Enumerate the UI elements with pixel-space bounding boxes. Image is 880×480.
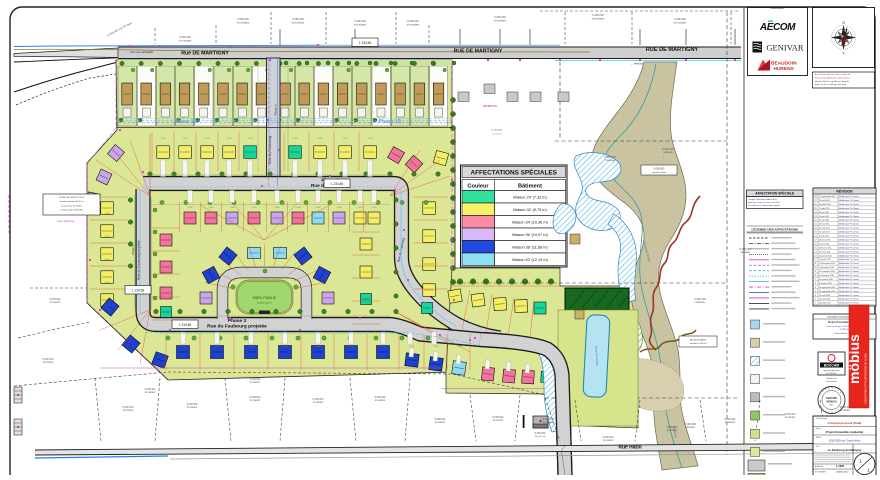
svg-text:5 096: 5 096 [367,138,373,140]
svg-text:CONCEPTION ET PLANIFICATION DE: CONCEPTION ET PLANIFICATION DE PLANS [865,353,868,404]
svg-text:se conformer à l'affectation p: se conformer à l'affectation projetée. [748,204,781,207]
svg-text:lot existant: lot existant [179,38,192,42]
svg-text:arpenteurs-géomètres: arpenteurs-géomètres [823,369,840,372]
svg-text:5 096: 5 096 [247,138,253,140]
svg-text:1 avril 2011: 1 avril 2011 [819,235,829,238]
svg-text:Modification Ph.1 émise: Modification Ph.1 émise [839,242,859,245]
svg-text:27 août 2010: 27 août 2010 [819,294,830,297]
svg-text:LÉGENDE DES AFFECTATIONS: LÉGENDE DES AFFECTATIONS [752,227,798,232]
svg-text:Modification Ph.3 émise: Modification Ph.3 émise [839,282,859,285]
svg-text:GENIVAR: GENIVAR [766,43,803,53]
svg-text:ruisseau: ruisseau [695,300,705,304]
svg-text:Rue DE MARTIGNY: Rue DE MARTIGNY [181,51,229,57]
svg-text:Modification Ph.1 émise: Modification Ph.1 émise [839,195,859,198]
svg-text:ÉCHELLE: ÉCHELLE [815,465,824,468]
svg-text:5 096: 5 096 [229,207,235,209]
svg-text:Modification Ph.2 émise: Modification Ph.2 émise [839,215,859,218]
svg-text:limite approuvée: limite approuvée [57,220,75,223]
svg-text:5 096: 5 096 [433,346,439,348]
svg-text:21 janvier 2011: 21 janvier 2011 [819,254,832,257]
svg-text:5 096: 5 096 [104,213,110,215]
svg-text:8 octobre 2010: 8 octobre 2010 [819,282,832,285]
svg-text:5 096: 5 096 [295,207,301,209]
svg-text:5 096: 5 096 [380,346,386,348]
svg-text:superficie 2 000 m²: superficie 2 000 m² [689,342,706,345]
svg-text:5 096: 5 096 [348,346,354,348]
svg-text:Bâtiment: Bâtiment [518,184,542,190]
svg-text:grille des usages et normes du: grille des usages et normes du Plan [748,201,780,204]
svg-text:30 juillet 2010: 30 juillet 2010 [819,302,831,305]
svg-text:29 avril 2011: 29 avril 2011 [819,227,830,230]
svg-text:PARC PUBLIC: PARC PUBLIC [253,296,277,300]
svg-text:5 096: 5 096 [104,259,110,261]
svg-text:15 avril 2011: 15 avril 2011 [819,231,830,234]
svg-text:1 234,56: 1 234,56 [359,41,372,45]
svg-text:N° DOSSIER: N° DOSSIER [815,472,826,474]
svg-text:lot vacant: lot vacant [250,381,261,384]
svg-text:Titre du projet: Titre du projet [816,417,828,420]
svg-text:5 096: 5 096 [214,346,220,348]
svg-text:Couleur: Couleur [467,184,489,190]
svg-text:GROUPE: GROUPE [826,396,838,400]
svg-text:MOBIUS: MOBIUS [826,400,837,404]
svg-text:Maison 34' (10,36 m): Maison 34' (10,36 m) [512,220,548,224]
svg-text:5 096: 5 096 [456,346,462,348]
svg-text:5 096: 5 096 [160,138,166,140]
svg-text:Partenaires: Partenaires [770,6,784,10]
svg-text:20 juillet 2011: 20 juillet 2011 [819,203,831,206]
svg-text:RUE DE MARTIGNY: RUE DE MARTIGNY [454,49,503,55]
svg-text:Lieu: Lieu [816,446,819,448]
svg-text:Modification Ph.3 émise: Modification Ph.3 émise [839,298,859,301]
svg-text:lot vacant: lot vacant [667,429,678,432]
svg-text:1 234,56: 1 234,56 [132,288,145,292]
svg-text:Modification Ph.3 émise: Modification Ph.3 émise [839,235,859,238]
svg-text:5 096 000: 5 096 000 [179,35,191,39]
svg-text:5 096: 5 096 [315,207,321,209]
svg-text:5 096: 5 096 [226,138,232,140]
svg-text:13 août 2010: 13 août 2010 [819,298,830,301]
svg-text:RUE DE MARTIGNY: RUE DE MARTIGNY [646,47,699,53]
svg-text:5 096 000: 5 096 000 [654,168,665,171]
svg-text:Maison 38' (11,58 m): Maison 38' (11,58 m) [512,245,548,249]
svg-text:bande riveraine de 10 m: bande riveraine de 10 m [60,200,84,203]
svg-text:24 septembre 2010: 24 septembre 2010 [819,286,835,289]
svg-text:Modification Ph.4 émise: Modification Ph.4 émise [839,254,859,257]
svg-text:Le Faubourg de Martigny: Le Faubourg de Martigny [828,448,862,452]
svg-text:Saint-Jérôme: Saint-Jérôme [826,380,837,383]
svg-text:Modification Ph.2 émise: Modification Ph.2 émise [839,231,859,234]
svg-text:lot vacant: lot vacant [785,416,796,419]
svg-text:BEAUDOIN: BEAUDOIN [771,61,797,67]
svg-text:Rue du Faubourg projetée: Rue du Faubourg projetée [207,324,267,330]
svg-text:möbius: möbius [846,334,862,384]
svg-text:034274-001: 034274-001 [836,472,848,474]
svg-text:ruisseau: ruisseau [740,250,750,254]
svg-text:5 096 000: 5 096 000 [237,17,249,21]
svg-text:5 096: 5 096 [104,236,110,238]
svg-text:Rue Hatin: Rue Hatin [618,445,641,451]
svg-text:niveaux et les dimensions. Tou: niveaux et les dimensions. Toute erreur … [815,77,851,80]
svg-text:BOCCAM: BOCCAM [824,364,839,368]
svg-text:Modification Ph.4 émise: Modification Ph.4 émise [839,270,859,273]
svg-text:7 juillet 2011: 7 juillet 2011 [819,207,829,210]
svg-text:5 096: 5 096 [208,207,214,209]
svg-text:18 mars 2011: 18 mars 2011 [819,238,830,241]
svg-text:5 096 000: 5 096 000 [292,17,304,21]
svg-text:lot vacant: lot vacant [603,439,614,442]
svg-text:lot vacant: lot vacant [313,401,324,404]
svg-text:Modification Ph.2 émise: Modification Ph.2 émise [839,262,859,265]
svg-text:4 mars 2011: 4 mars 2011 [819,242,829,245]
svg-text:Roxell Tub: Roxell Tub [535,436,546,438]
svg-text:Phase 2: Phase 2 [274,104,278,115]
svg-text:4 février 2011: 4 février 2011 [819,250,830,253]
svg-text:Modification Ph.3 émise: Modification Ph.3 émise [839,219,859,222]
svg-text:19 novembre 2010: 19 novembre 2010 [819,270,835,273]
svg-text:Modification Ph.2 émise: Modification Ph.2 émise [839,294,859,297]
svg-text:AECOM: AECOM [759,22,796,33]
svg-text:5 096: 5 096 [182,138,188,140]
svg-text:lot existant: lot existant [407,22,420,26]
svg-text:Maison 40' (12,19 m): Maison 40' (12,19 m) [512,258,548,262]
svg-text:1 234,56: 1 234,56 [179,323,192,327]
svg-text:Modification Ph.4 émise: Modification Ph.4 émise [839,223,859,226]
svg-text:4 753 561: 4 753 561 [492,129,503,132]
svg-text:17 décembre 2010: 17 décembre 2010 [819,262,835,265]
svg-text:lot vacant: lot vacant [187,406,198,409]
svg-text:lot vacant: lot vacant [492,132,502,135]
svg-text:humide (règl. 2010-99): humide (règl. 2010-99) [60,209,82,212]
svg-text:3 décembre 2010: 3 décembre 2010 [819,266,834,269]
svg-text:lot existant: lot existant [592,16,605,20]
svg-text:ruisseau: ruisseau [605,158,615,162]
svg-text:Modification Ph.1 émise: Modification Ph.1 émise [839,211,859,214]
svg-text:5 096: 5 096 [315,346,321,348]
svg-text:Lorsque l'affectation diffère: Lorsque l'affectation diffère de la [748,198,778,201]
svg-text:5 novembre 2010: 5 novembre 2010 [819,274,834,277]
svg-text:22 octobre 2010: 22 octobre 2010 [819,278,833,281]
svg-text:Modification Ph.3 émise: Modification Ph.3 émise [839,203,859,206]
svg-text:lot vacant: lot vacant [375,399,386,402]
svg-text:5 096 000: 5 096 000 [407,19,419,23]
svg-text:lot vacant: lot vacant [123,409,134,412]
svg-text:RÉTENTION: RÉTENTION [483,105,497,108]
svg-text:lot vacant: lot vacant [250,399,261,402]
svg-text:3150-3250 boul. Grand-Héron: 3150-3250 boul. Grand-Héron [829,440,862,443]
svg-text:Modification Ph.1 émise: Modification Ph.1 émise [839,274,859,277]
svg-text:3 200 100: 3 200 100 [840,329,850,331]
svg-text:superficie totale: superficie totale [652,171,667,174]
svg-text:5 096: 5 096 [336,207,342,209]
svg-text:ruisseau: ruisseau [685,425,695,429]
svg-text:Concept proposé (final): Concept proposé (final) [828,421,862,425]
svg-text:Phase 1B: Phase 1B [379,119,402,125]
svg-text:Modification Ph.3 émise: Modification Ph.3 émise [839,266,859,269]
svg-text:lot vacant: lot vacant [145,391,156,394]
svg-text:INC.: INC. [830,405,834,407]
svg-text:5 096: 5 096 [248,346,254,348]
svg-text:24 juin 2011: 24 juin 2011 [819,212,829,214]
svg-text:S: S [842,51,844,55]
svg-text:HURENS: HURENS [774,66,795,72]
svg-text:5 096: 5 096 [204,138,210,140]
svg-text:7 janvier 2011: 7 janvier 2011 [819,258,831,261]
svg-text:Modification Ph.4 émise: Modification Ph.4 émise [839,286,859,289]
svg-text:5 096 000: 5 096 000 [535,432,546,435]
svg-text:Projet: Projet [816,427,821,430]
svg-text:10 septembre 2010: 10 septembre 2010 [819,290,835,293]
svg-text:Modification Ph.4 émise: Modification Ph.4 émise [839,238,859,241]
svg-text:ruisseau: ruisseau [663,150,673,154]
svg-text:lot vacant: lot vacant [43,361,54,364]
svg-text:superficie 2 500 m²: superficie 2 500 m² [257,302,273,305]
svg-text:26 août 2011: 26 août 2011 [819,199,830,202]
svg-text:10 juin 2011: 10 juin 2011 [819,216,829,218]
svg-text:Phase 3: Phase 3 [228,318,246,324]
svg-text:lot vacant: lot vacant [493,419,504,422]
svg-text:Phase 1A: Phase 1A [175,119,198,125]
svg-text:N/Réf.: N/Réf. [816,437,822,439]
svg-text:5 096: 5 096 [342,138,348,140]
svg-text:Maison 24' (7,32 m): Maison 24' (7,32 m) [513,195,547,199]
svg-text:27 mai 2011: 27 mai 2011 [819,220,829,222]
svg-text:AFFECTATION SPÉCIALE: AFFECTATION SPÉCIALE [755,191,794,196]
svg-text:lot vacant: lot vacant [725,421,736,424]
svg-text:Modification Ph.4 émise: Modification Ph.4 émise [839,302,859,305]
svg-text:← Vers rue Lachapelle: ← Vers rue Lachapelle [127,50,154,54]
svg-text:lot existant: lot existant [494,18,507,22]
svg-text:12 septembre 2011: 12 septembre 2011 [819,195,835,198]
svg-text:5 096: 5 096 [187,207,193,209]
svg-text:1 234,56: 1 234,56 [331,182,344,186]
svg-text:13 mai 2011: 13 mai 2011 [819,224,829,226]
svg-text:5 096: 5 096 [409,346,415,348]
svg-text:MILIEU HUMIDE: MILIEU HUMIDE [690,340,707,342]
svg-text:lot vacant: lot vacant [543,421,554,424]
svg-text:ZONE DE PROTECTION: ZONE DE PROTECTION [59,197,84,199]
svg-text:Maison 36' (10,97 m): Maison 36' (10,97 m) [512,233,548,237]
svg-text:lot existant: lot existant [354,22,367,26]
svg-text:5 096 000: 5 096 000 [354,19,366,23]
svg-text:AFFECTATIONS SPÉCIALES: AFFECTATIONS SPÉCIALES [470,168,557,177]
svg-text:5 096: 5 096 [251,207,257,209]
svg-text:5 096: 5 096 [357,207,363,209]
svg-text:5 096: 5 096 [282,346,288,348]
svg-text:Modification Ph.2 émise: Modification Ph.2 émise [839,278,859,281]
svg-text:Labelle & fils: Labelle & fils [826,378,836,380]
svg-text:Modification Ph.1 émise: Modification Ph.1 émise [839,227,859,230]
svg-text:5 096: 5 096 [274,207,280,209]
svg-text:5 096 000: 5 096 000 [592,13,604,17]
svg-text:5 096: 5 096 [104,305,110,307]
svg-text:5 096 000: 5 096 000 [494,15,506,19]
svg-text:Modification Ph.4 émise: Modification Ph.4 émise [839,207,859,210]
svg-text:5 096 000: 5 096 000 [674,17,686,21]
svg-text:Modification Ph.3 émise: Modification Ph.3 émise [839,250,859,253]
svg-text:5 096: 5 096 [317,138,323,140]
svg-text:5 096: 5 096 [292,138,298,140]
svg-text:18 février 2011: 18 février 2011 [819,246,831,249]
svg-text:omission doit être signalée au: omission doit être signalée au chargé de [815,80,849,83]
svg-text:lot vacant: lot vacant [50,301,61,304]
svg-text:lot vacant: lot vacant [435,421,446,424]
svg-text:lot existant: lot existant [674,20,687,24]
svg-text:5 096: 5 096 [371,207,377,209]
svg-text:lot existant: lot existant [292,20,305,24]
svg-text:Modification Ph.1 émise: Modification Ph.1 émise [839,290,859,293]
svg-text:Projet d'ensemble résidentiel: Projet d'ensemble résidentiel [826,430,863,434]
svg-text:Modification Ph.2 émise: Modification Ph.2 émise [839,246,859,249]
svg-text:Modification Ph.2 émise: Modification Ph.2 émise [839,199,859,202]
svg-text:5 096: 5 096 [180,346,186,348]
svg-text:1:1000: 1:1000 [836,464,845,468]
svg-text:450 430-4322: 450 430-4322 [826,373,836,375]
svg-text:RÉVISION: RÉVISION [836,189,853,194]
svg-text:Avant de procéder aux travaux,: Avant de procéder aux travaux, vérifier … [815,73,850,76]
svg-text:Maison 32' (9,75 m): Maison 32' (9,75 m) [513,208,547,212]
svg-text:au pourtour du milieu: au pourtour du milieu [61,204,82,207]
svg-text:Modification Ph.1 émise: Modification Ph.1 émise [839,258,859,261]
svg-text:Rue du Faubourg projetée: Rue du Faubourg projetée [137,240,141,280]
svg-text:5 096: 5 096 [104,282,110,284]
svg-text:projet. Ce plan ne doit pas êt: projet. Ce plan ne doit pas être utilisé [815,83,846,86]
svg-text:lot existant: lot existant [237,20,250,24]
